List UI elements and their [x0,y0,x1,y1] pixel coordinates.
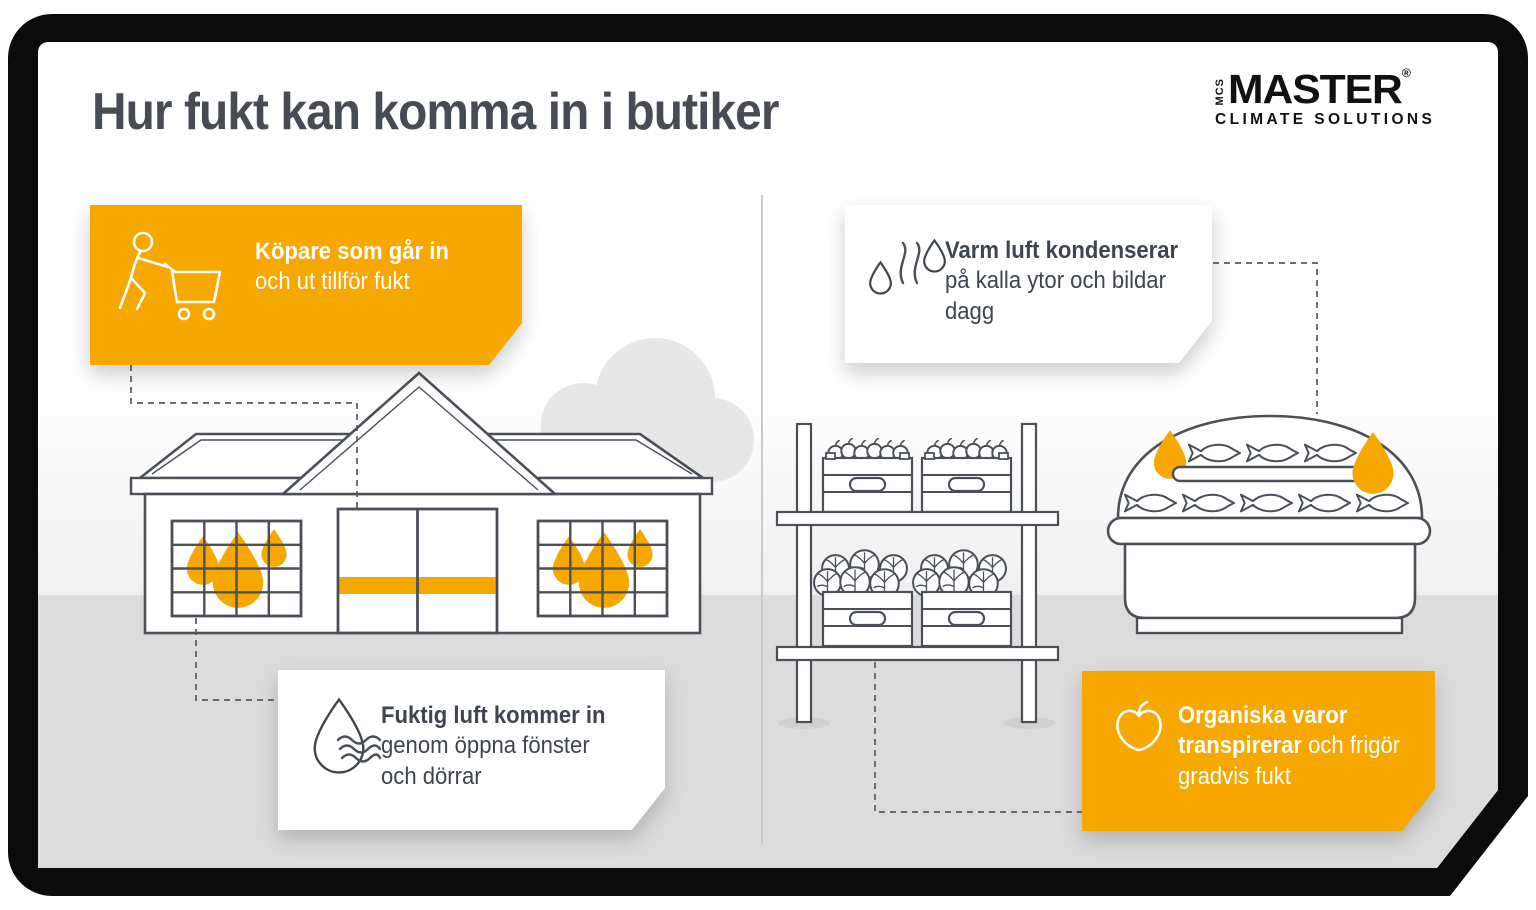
callout-shoppers: Köpare som går in och ut tillför fukt [90,205,522,365]
page-title: Hur fukt kan komma in i butiker [92,84,779,141]
callout-text: Köpare som går in och ut tillför fukt [255,237,471,298]
logo-mcs-text: MCS [1215,75,1226,105]
logo-master-text: MASTER® [1228,73,1410,106]
window-drop [187,536,219,585]
fish-icon [1183,495,1234,512]
dome-handle-bar [1173,467,1367,481]
roof [140,434,703,478]
infographic-page: Hur fukt kan komma in i butiker MCS MAST… [0,0,1536,910]
apple-crate [823,438,912,512]
master-climate-solutions-logo: MCS MASTER® CLIMATE SOLUTIONS [1215,73,1447,129]
fish-icon [1189,445,1240,462]
callout-text: Varm luft kondenserar på kalla ytor och … [945,236,1186,327]
callout-text: Organiska varor transpirerar och frigör … [1178,701,1410,792]
case-rim [1108,518,1430,544]
fish-icon [1247,445,1298,462]
infographic-content: Hur fukt kan komma in i butiker MCS MAST… [38,42,1498,868]
apple-icon [1110,699,1168,759]
registered-trademark-symbol: ® [1402,66,1410,80]
glass-dome [1118,416,1422,518]
cloud-icon [541,338,754,482]
shelf-board [777,512,1058,525]
connector-shoppers-to-door [131,365,357,509]
gable-roof [283,373,555,494]
connector-condensation-to-case [1213,263,1317,414]
callout-organic-goods: Organiska varor transpirerar och frigör … [1082,671,1435,831]
callout-condensation: Varm luft kondenserar på kalla ytor och … [845,205,1212,363]
eave-band [131,478,712,494]
store-building [131,373,712,633]
fish-icon [1241,495,1292,512]
fish-icon [1299,495,1350,512]
condensation-drop [1154,430,1186,479]
fish-icon [1357,495,1408,512]
fish-icon [1305,445,1356,462]
callout-humid-air: Fuktig luft kommer in genom öppna fönste… [278,670,665,830]
callout-text: Fuktig luft kommer in genom öppna fönste… [381,701,616,792]
window-drop [261,529,286,567]
condensation-drop [1352,432,1393,494]
steam-drops-icon [867,237,947,303]
door-orange-band [340,577,496,594]
fish-icon [1125,495,1176,512]
apple-crate [922,438,1011,512]
logo-subtitle: CLIMATE SOLUTIONS [1215,111,1447,129]
shopping-cart-person-icon [116,229,236,341]
